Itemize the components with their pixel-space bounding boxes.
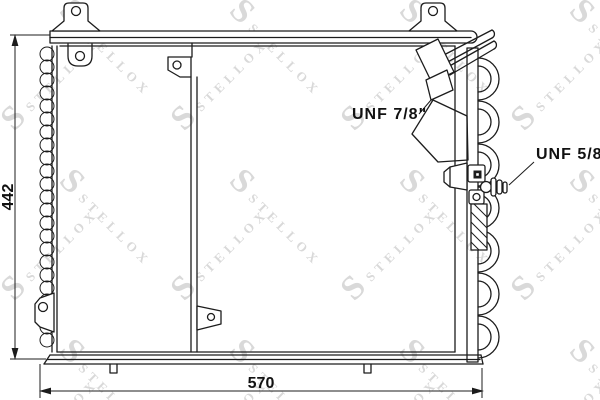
fitting-top-label: UNF 7/8" — [352, 106, 427, 123]
drawing-canvas: S STELLOX S STELLOX — [0, 0, 600, 400]
screw-pad — [469, 190, 484, 204]
top-mounting-rail — [50, 31, 477, 43]
fitting-side-label: UNF 5/8" — [536, 146, 600, 163]
upper-left-bracket — [68, 44, 92, 66]
condenser-technical-drawing: S STELLOX S STELLOX — [0, 0, 600, 400]
dimension-height-label: 442 — [0, 184, 17, 211]
fitting-elbow — [481, 182, 492, 193]
dimension-width-label: 570 — [248, 375, 275, 392]
drier-tube — [471, 204, 487, 250]
fitting-nut-icon — [497, 180, 502, 194]
fitting-nut-icon — [503, 182, 507, 193]
fitting-nut-icon — [491, 178, 496, 196]
